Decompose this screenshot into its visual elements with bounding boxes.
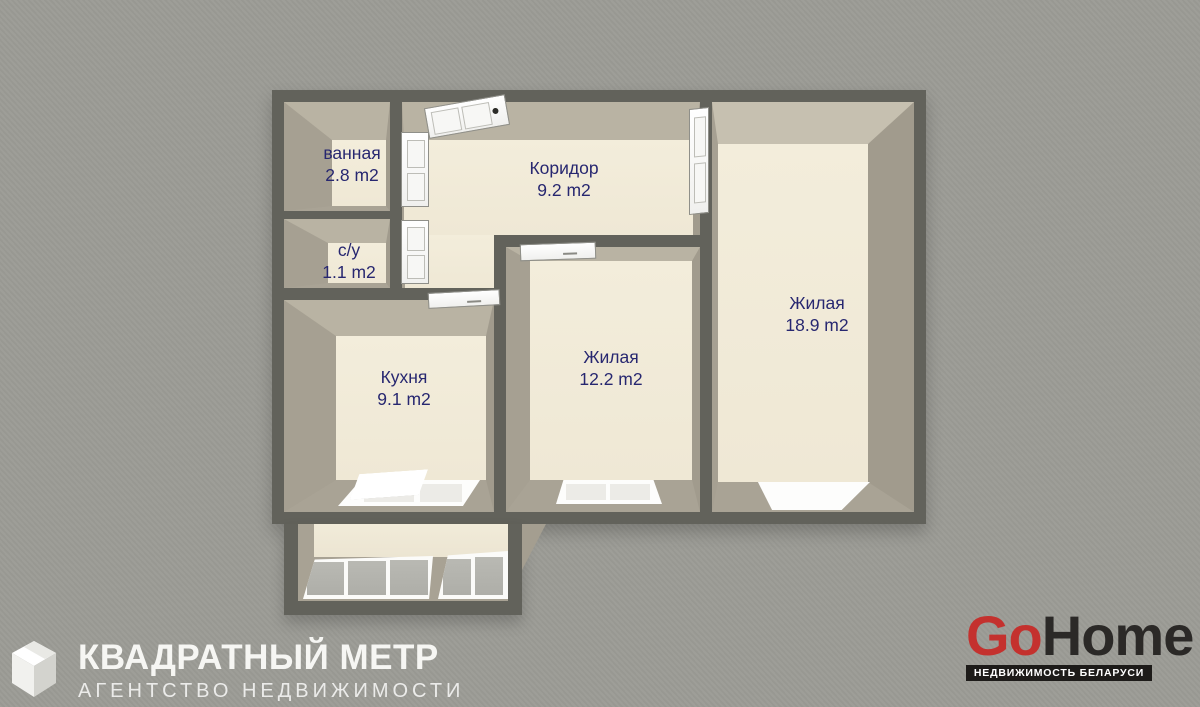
- room-area: 12.2 m2: [579, 368, 642, 390]
- room-area: 18.9 m2: [785, 314, 848, 336]
- door-handle: [467, 300, 481, 303]
- door-panel: [407, 227, 425, 251]
- living-small-window: [556, 480, 662, 504]
- portal-name: GoHome: [966, 608, 1193, 664]
- door-panel: [694, 162, 706, 203]
- agency-title: КВАДРАТНЫЙ МЕТР: [78, 640, 464, 676]
- label-kitchen: Кухня 9.1 m2: [377, 366, 431, 410]
- door-panel: [407, 255, 425, 279]
- portal-tagline: НЕДВИЖИМОСТЬ БЕЛАРУСИ: [966, 665, 1152, 681]
- label-corridor: Коридор 9.2 m2: [529, 157, 598, 201]
- portal-name-home: Home: [1042, 604, 1194, 667]
- living-small-door: [520, 242, 597, 262]
- room-area: 9.1 m2: [377, 388, 431, 410]
- glass-pane: [307, 562, 344, 595]
- room-area: 2.8 m2: [323, 164, 380, 186]
- label-living-large: Жилая 18.9 m2: [785, 292, 848, 336]
- agency-logo: КВАДРАТНЫЙ МЕТР АГЕНТСТВО НЕДВИЖИМОСТИ: [12, 640, 464, 703]
- room-name: Жилая: [785, 292, 848, 314]
- glass-pane: [390, 560, 428, 595]
- room-area: 1.1 m2: [322, 261, 376, 283]
- room-name: Кухня: [377, 366, 431, 388]
- door-panel: [694, 116, 706, 157]
- cube-icon: [12, 640, 56, 700]
- door-panel: [431, 107, 463, 135]
- room-name: ванная: [323, 142, 380, 164]
- agency-text: КВАДРАТНЫЙ МЕТР АГЕНТСТВО НЕДВИЖИМОСТИ: [78, 640, 464, 703]
- door-panel: [407, 173, 425, 201]
- room-name: Коридор: [529, 157, 598, 179]
- room-name: Жилая: [579, 346, 642, 368]
- portal-name-go: Go: [966, 604, 1042, 667]
- door-knob: [492, 107, 499, 114]
- bathroom-door: [401, 132, 429, 207]
- balcony-floor: [314, 524, 508, 557]
- label-toilet: с/у 1.1 m2: [322, 239, 376, 283]
- living-large-door: [689, 107, 709, 215]
- agency-subtitle: АГЕНТСТВО НЕДВИЖИМОСТИ: [78, 680, 464, 703]
- label-bathroom: ванная 2.8 m2: [323, 142, 380, 186]
- balcony-outer-face: [522, 524, 546, 570]
- door-panel: [461, 102, 493, 130]
- room-name: с/у: [322, 239, 376, 261]
- portal-logo: GoHome НЕДВИЖИМОСТЬ БЕЛАРУСИ: [966, 608, 1193, 681]
- room-area: 9.2 m2: [529, 179, 598, 201]
- door-handle: [563, 252, 577, 254]
- label-living-small: Жилая 12.2 m2: [579, 346, 642, 390]
- glass-pane: [348, 561, 386, 595]
- balcony-glazing-right: [438, 551, 508, 599]
- glass-pane: [443, 559, 471, 595]
- toilet-door: [401, 220, 429, 284]
- window-pane: [420, 484, 462, 502]
- floorplan-canvas: ванная 2.8 m2 с/у 1.1 m2 Коридор 9.2 m2 …: [0, 0, 1200, 707]
- window-pane: [566, 484, 606, 500]
- balcony-glazing-left: [303, 556, 433, 599]
- window-pane: [610, 484, 650, 500]
- glass-pane: [475, 557, 503, 595]
- door-panel: [407, 140, 425, 168]
